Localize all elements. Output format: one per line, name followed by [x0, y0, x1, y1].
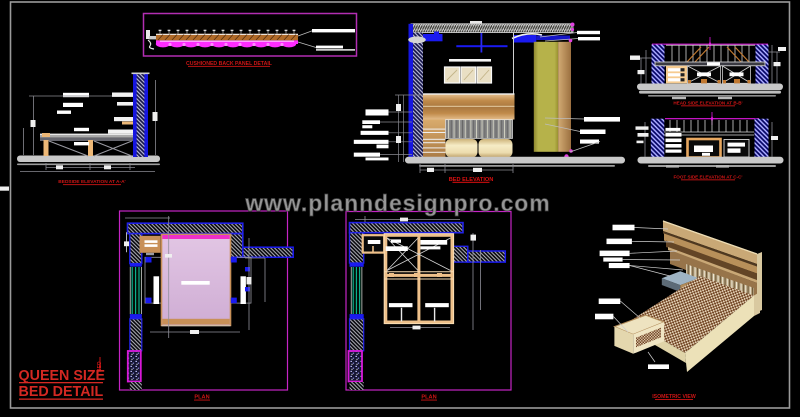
svg-text:www.planndesignpro.com: www.planndesignpro.com — [244, 190, 550, 216]
svg-text:QUEEN SIZE: QUEEN SIZE — [19, 368, 106, 384]
svg-text:FOOT SIDE ELEVATION AT C-C': FOOT SIDE ELEVATION AT C-C' — [673, 175, 742, 180]
svg-text:HEAD SIDE ELEVATION AT B-B': HEAD SIDE ELEVATION AT B-B' — [673, 101, 742, 106]
svg-text:BEDSIDE ELEVATION AT A-A': BEDSIDE ELEVATION AT A-A' — [58, 179, 125, 185]
svg-text:BED DETAIL: BED DETAIL — [19, 384, 104, 400]
